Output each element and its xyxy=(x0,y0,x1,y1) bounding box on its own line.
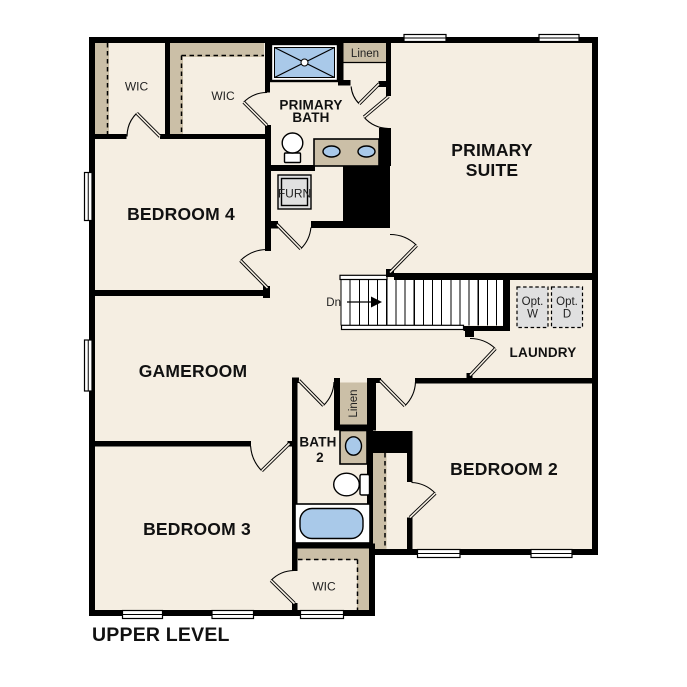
svg-text:Linen: Linen xyxy=(351,48,379,60)
svg-text:UPPER LEVEL: UPPER LEVEL xyxy=(92,624,230,646)
svg-text:WIC: WIC xyxy=(312,580,336,594)
svg-text:Dn: Dn xyxy=(326,297,341,309)
svg-text:2: 2 xyxy=(316,450,324,465)
svg-text:GAMEROOM: GAMEROOM xyxy=(139,361,248,381)
svg-text:Opt.: Opt. xyxy=(556,296,578,308)
svg-text:SUITE: SUITE xyxy=(466,160,519,180)
svg-text:Linen: Linen xyxy=(348,389,360,417)
svg-text:FURN: FURN xyxy=(278,187,311,201)
svg-text:W: W xyxy=(527,309,538,321)
svg-text:WIC: WIC xyxy=(125,80,149,94)
svg-text:WIC: WIC xyxy=(211,89,235,103)
svg-text:Opt.: Opt. xyxy=(522,296,544,308)
svg-text:BEDROOM 2: BEDROOM 2 xyxy=(450,459,558,479)
svg-text:BATH: BATH xyxy=(299,435,336,450)
svg-text:PRIMARY: PRIMARY xyxy=(451,140,533,160)
svg-text:LAUNDRY: LAUNDRY xyxy=(510,345,577,360)
svg-text:BEDROOM 4: BEDROOM 4 xyxy=(127,204,235,224)
svg-text:D: D xyxy=(563,309,571,321)
svg-text:BATH: BATH xyxy=(292,110,329,125)
svg-text:BEDROOM 3: BEDROOM 3 xyxy=(143,519,251,539)
